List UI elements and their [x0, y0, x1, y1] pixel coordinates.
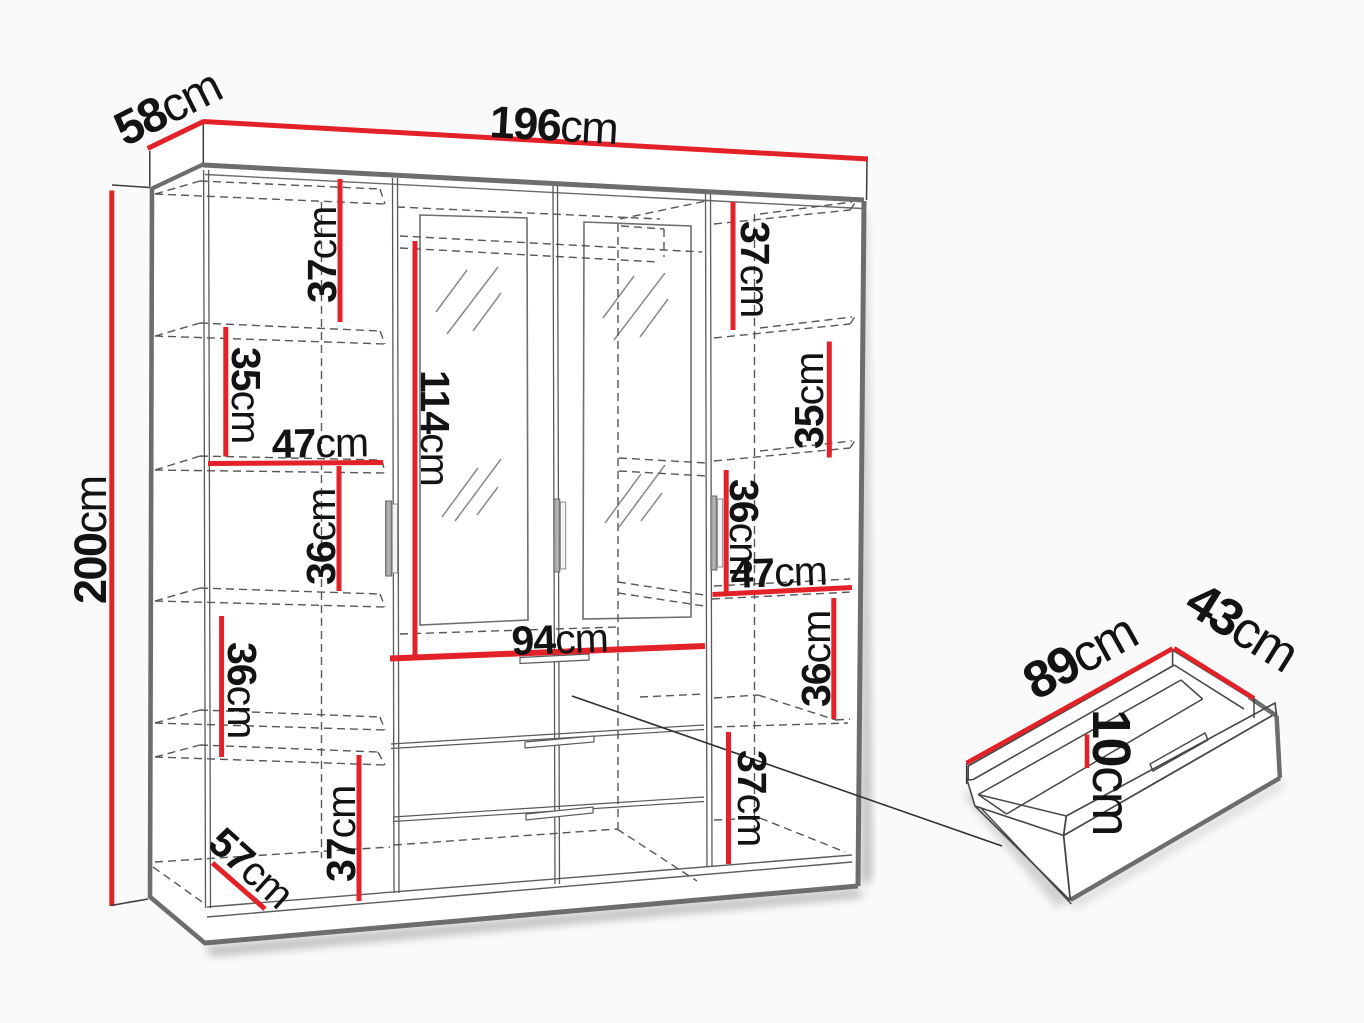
svg-text:35cm: 35cm: [223, 347, 269, 443]
svg-text:200cm: 200cm: [65, 476, 116, 604]
svg-text:35cm: 35cm: [786, 353, 832, 449]
svg-text:47cm: 47cm: [730, 548, 828, 597]
svg-text:36cm: 36cm: [298, 489, 344, 585]
svg-text:94cm: 94cm: [511, 615, 609, 664]
svg-text:37cm: 37cm: [732, 221, 778, 317]
svg-text:47cm: 47cm: [271, 419, 368, 467]
svg-text:36cm: 36cm: [219, 642, 265, 738]
svg-text:196cm: 196cm: [488, 96, 618, 154]
svg-text:37cm: 37cm: [729, 750, 775, 846]
svg-text:10cm: 10cm: [1081, 709, 1141, 835]
svg-text:114cm: 114cm: [412, 370, 458, 486]
svg-text:36cm: 36cm: [793, 611, 839, 707]
svg-text:37cm: 37cm: [299, 207, 345, 303]
svg-text:37cm: 37cm: [318, 786, 364, 882]
